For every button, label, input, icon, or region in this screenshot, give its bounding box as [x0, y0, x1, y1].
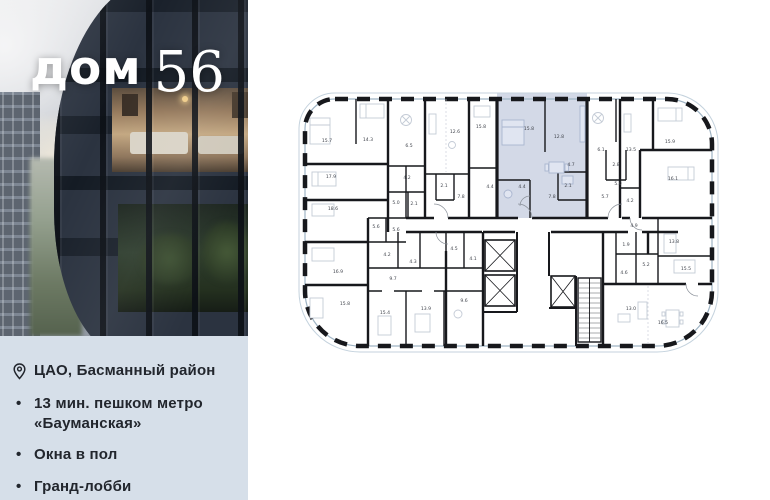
room-area-label: 12.6: [450, 129, 460, 135]
location-pin-icon: [13, 363, 26, 380]
room-area-label: 16.9: [333, 269, 343, 275]
room-area-label: 4.9: [630, 223, 637, 229]
info-panel: ЦАО, Басманный район •13 мин. пешком мет…: [0, 336, 248, 500]
room-area-label: 13.8: [669, 239, 679, 245]
bullet-icon: •: [16, 394, 34, 414]
floor-plan-svg: 15.714.36.512.615.815.812.84.76.113.515.…: [286, 88, 720, 354]
location-text: ЦАО, Басманный район: [34, 362, 216, 379]
room-area-label: 18.6: [328, 206, 338, 212]
room-area-label: 5.6: [392, 227, 399, 233]
bullet-icon: •: [16, 477, 34, 497]
room-area-label: 4.2: [383, 252, 390, 258]
feature-item: •13 мин. пешком метро «Бауманская»: [16, 394, 234, 433]
room-area-label: 1.9: [622, 242, 629, 248]
feature-item: •Окна в пол: [16, 445, 234, 465]
room-area-label: 9.7: [389, 276, 396, 282]
core-walls: [483, 232, 576, 346]
stairs-icon: [578, 278, 601, 342]
room-area-label: 7.8: [457, 194, 464, 200]
room-area-label: 5.0: [392, 200, 399, 206]
room-area-label: 4.4: [518, 184, 525, 190]
room-area-label: 4.3: [409, 259, 416, 265]
corridor-walls: [406, 218, 712, 232]
page-root: дом 56 ЦАО, Басманный район •13 мин. пеш…: [0, 0, 770, 500]
room-area-label: 5.6: [372, 224, 379, 230]
room-area-label: 4.7: [567, 162, 574, 168]
bullet-icon: •: [16, 445, 34, 465]
room-area-label: 15.4: [380, 310, 390, 316]
location-row: ЦАО, Басманный район: [13, 362, 248, 380]
room-area-label: 4.1: [469, 256, 476, 262]
room-area-label: 15.9: [665, 139, 675, 145]
room-area-label: 17.9: [326, 174, 336, 180]
room-area-label: 15.8: [524, 126, 534, 132]
room-area-label: 13.0: [626, 306, 636, 312]
room-area-label: 7.8: [548, 194, 555, 200]
room-area-label: 5.2: [642, 262, 649, 268]
room-area-label: 15.7: [322, 138, 332, 144]
room-area-label: 9.6: [460, 298, 467, 304]
room-area-label: 4.4: [486, 184, 493, 190]
room-area-label: 2.1: [410, 201, 417, 207]
room-area-label: 2.8: [612, 162, 619, 168]
room-area-label: 16.1: [668, 176, 678, 182]
features-list: •13 мин. пешком метро «Бауманская»•Окна …: [0, 394, 248, 496]
room-area-label: 2.1: [440, 183, 447, 189]
room-area-label: 13.5: [626, 147, 636, 153]
room-area-label: 15.8: [340, 301, 350, 307]
feature-text: 13 мин. пешком метро «Бауманская»: [34, 394, 234, 433]
highlighted-apartment[interactable]: [497, 93, 587, 218]
room-area-label: 5.7: [601, 194, 608, 200]
room-area-label: 15.8: [476, 124, 486, 130]
room-area-label: 14.3: [363, 137, 373, 143]
room-area-label: 6.5: [405, 143, 412, 149]
room-area-label: 4.2: [626, 198, 633, 204]
feature-text: Гранд-лобби: [34, 477, 234, 497]
brand-logo: дом 56: [30, 38, 225, 94]
room-area-label: 2.1: [564, 183, 571, 189]
room-area-label: 12.8: [554, 134, 564, 140]
room-area-label: 16.5: [658, 320, 668, 326]
logo-number: 56: [154, 45, 225, 101]
building-photo: дом 56: [0, 0, 248, 336]
room-area-label: 4.2: [403, 175, 410, 181]
logo-word: дом: [30, 45, 142, 92]
elevator-shaft-icon: [485, 240, 575, 307]
room-area-label: 5.0: [614, 181, 621, 187]
room-area-label: 13.9: [421, 306, 431, 312]
room-area-label: 4.6: [620, 270, 627, 276]
feature-item: •Гранд-лобби: [16, 477, 234, 497]
feature-text: Окна в пол: [34, 445, 234, 465]
room-area-label: 6.1: [597, 147, 604, 153]
floor-plan-region: 15.714.36.512.615.815.812.84.76.113.515.…: [286, 88, 720, 354]
room-area-label: 4.5: [450, 246, 457, 252]
room-area-label: 15.5: [681, 266, 691, 272]
